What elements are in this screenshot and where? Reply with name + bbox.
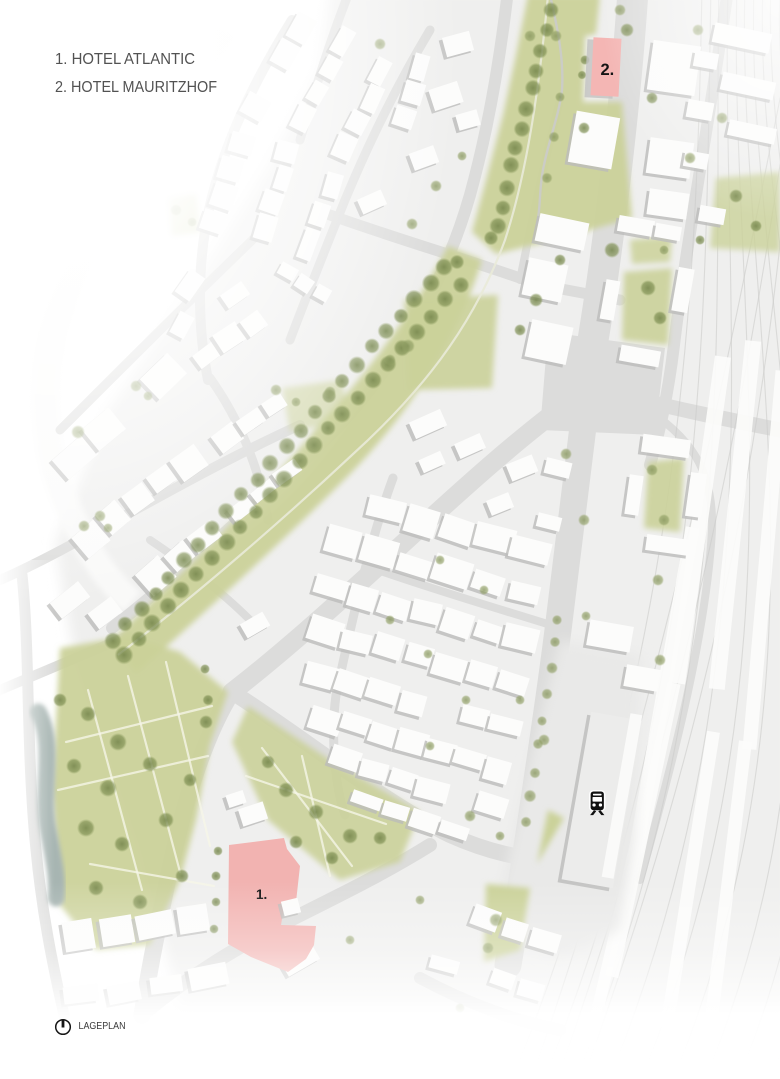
- svg-text:1. HOTEL ATLANTIC: 1. HOTEL ATLANTIC: [55, 51, 195, 68]
- svg-text:LAGEPLAN: LAGEPLAN: [79, 1021, 126, 1032]
- svg-text:2. HOTEL MAURITZHOF: 2. HOTEL MAURITZHOF: [55, 79, 217, 96]
